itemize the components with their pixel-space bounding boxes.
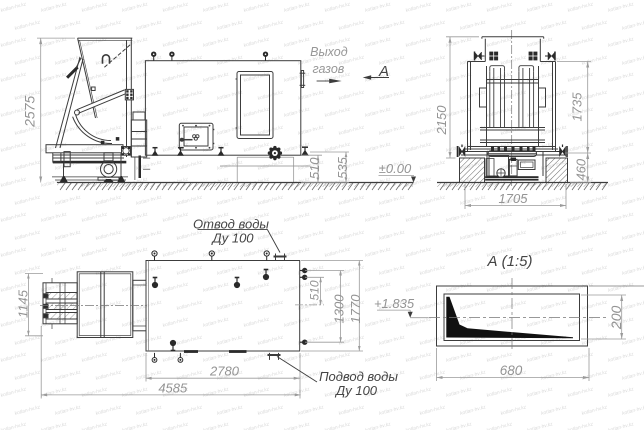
svg-text:4585: 4585 bbox=[158, 381, 188, 396]
svg-text:±0.00: ±0.00 bbox=[379, 161, 412, 176]
svg-text:Выход: Выход bbox=[310, 45, 348, 59]
svg-text:2780: 2780 bbox=[209, 364, 240, 379]
svg-text:А (1:5): А (1:5) bbox=[486, 253, 532, 270]
svg-text:1300: 1300 bbox=[332, 294, 347, 324]
svg-text:А: А bbox=[378, 63, 389, 80]
svg-text:2575: 2575 bbox=[21, 96, 37, 128]
svg-text:1770: 1770 bbox=[348, 294, 363, 324]
svg-text:535: 535 bbox=[335, 156, 350, 178]
svg-text:1145: 1145 bbox=[16, 289, 31, 318]
svg-text:680: 680 bbox=[500, 363, 523, 378]
svg-text:Ду 100: Ду 100 bbox=[210, 231, 254, 246]
svg-text:1705: 1705 bbox=[499, 191, 529, 206]
svg-text:Подвод воды: Подвод воды bbox=[319, 369, 398, 384]
svg-text:2150: 2150 bbox=[434, 105, 449, 136]
svg-text:Ду 100: Ду 100 bbox=[334, 383, 378, 398]
svg-text:газов: газов bbox=[312, 62, 344, 76]
svg-text:510: 510 bbox=[308, 280, 322, 300]
svg-text:200: 200 bbox=[608, 306, 624, 331]
svg-text:+1.835: +1.835 bbox=[374, 296, 415, 311]
svg-text:510: 510 bbox=[307, 157, 322, 179]
svg-text:460: 460 bbox=[573, 158, 588, 180]
svg-text:1735: 1735 bbox=[570, 92, 585, 122]
